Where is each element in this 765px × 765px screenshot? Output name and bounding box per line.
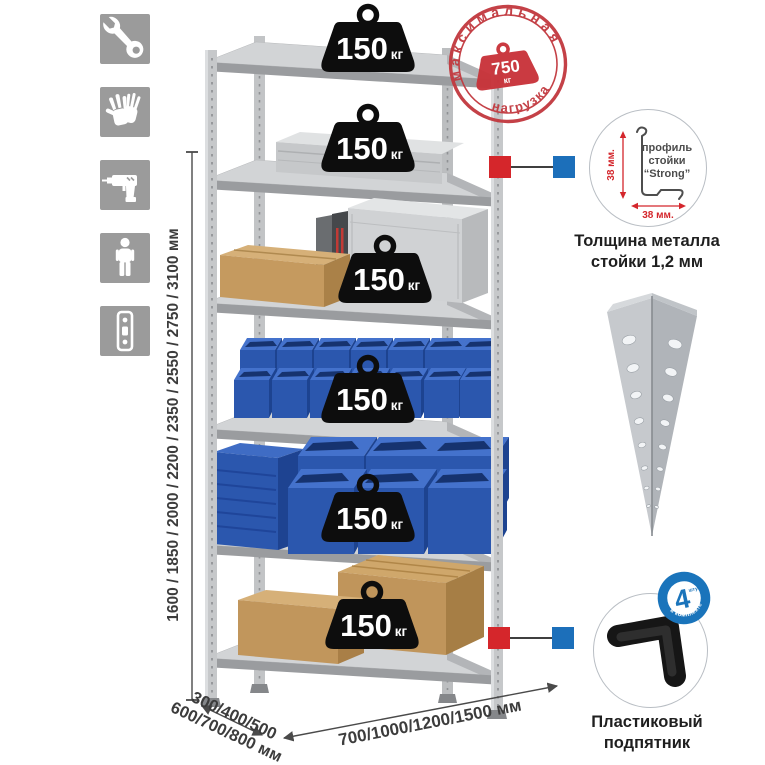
svg-text:38 мм.: 38 мм.	[606, 149, 617, 181]
post-profile-detail: 38 мм. 38 мм. профиль стойки “Strong”	[589, 109, 707, 227]
badge-unit: кг	[391, 398, 404, 413]
profile-caption-line1: Толщина металла	[565, 231, 729, 252]
badge-unit: кг	[408, 278, 421, 293]
badge-value: 150	[336, 382, 388, 417]
cardboard-box	[220, 245, 350, 307]
profile-label-3: “Strong”	[644, 168, 690, 180]
svg-text:38 мм.: 38 мм.	[642, 210, 674, 221]
badge-value: 150	[336, 131, 388, 166]
badge-unit: кг	[391, 47, 404, 62]
vertical-dim: 38 мм.	[606, 131, 626, 199]
height-dimension-line	[186, 152, 198, 700]
badge-unit: кг	[391, 147, 404, 162]
foot-caption-line1: Пластиковый	[565, 712, 729, 733]
quantity-badge: в комплекте 4 штуки	[656, 570, 712, 626]
profile-caption: Толщина металла стойки 1,2 мм	[565, 231, 729, 273]
load-badge: 150 кг	[321, 107, 414, 173]
horizontal-dim: 38 мм.	[631, 203, 686, 221]
stamp-weight-icon: 750 кг	[471, 40, 539, 91]
load-badge: 150 кг	[321, 7, 414, 73]
rack-post-icon	[100, 306, 150, 356]
person-icon	[100, 233, 150, 283]
badge-unit: кг	[391, 517, 404, 532]
shelving-infographic: 150 кг 150 кг 150 кг 150 кг 150 кг	[0, 0, 765, 765]
profile-label-1: профиль	[642, 142, 692, 154]
foot-callout	[488, 627, 574, 649]
foot-caption: Пластиковый подпятник	[565, 712, 729, 754]
badge-value: 150	[336, 501, 388, 536]
badge-unit: кг	[395, 624, 408, 639]
foot-caption-line2: подпятник	[565, 733, 729, 754]
gloves-icon	[100, 87, 150, 137]
wrench-icon	[100, 14, 150, 64]
corner-post-figure	[597, 292, 709, 548]
drill-icon	[100, 160, 150, 210]
height-dimension-label: 1600 / 1850 / 2000 / 2200 / 2350 / 2550 …	[165, 145, 183, 705]
profile-callout	[489, 156, 575, 178]
badge-value: 150	[353, 262, 405, 297]
badge-value: 150	[336, 31, 388, 66]
badge-value: 150	[340, 608, 392, 643]
profile-label-2: стойки	[648, 155, 685, 167]
profile-caption-line2: стойки 1,2 мм	[565, 252, 729, 273]
